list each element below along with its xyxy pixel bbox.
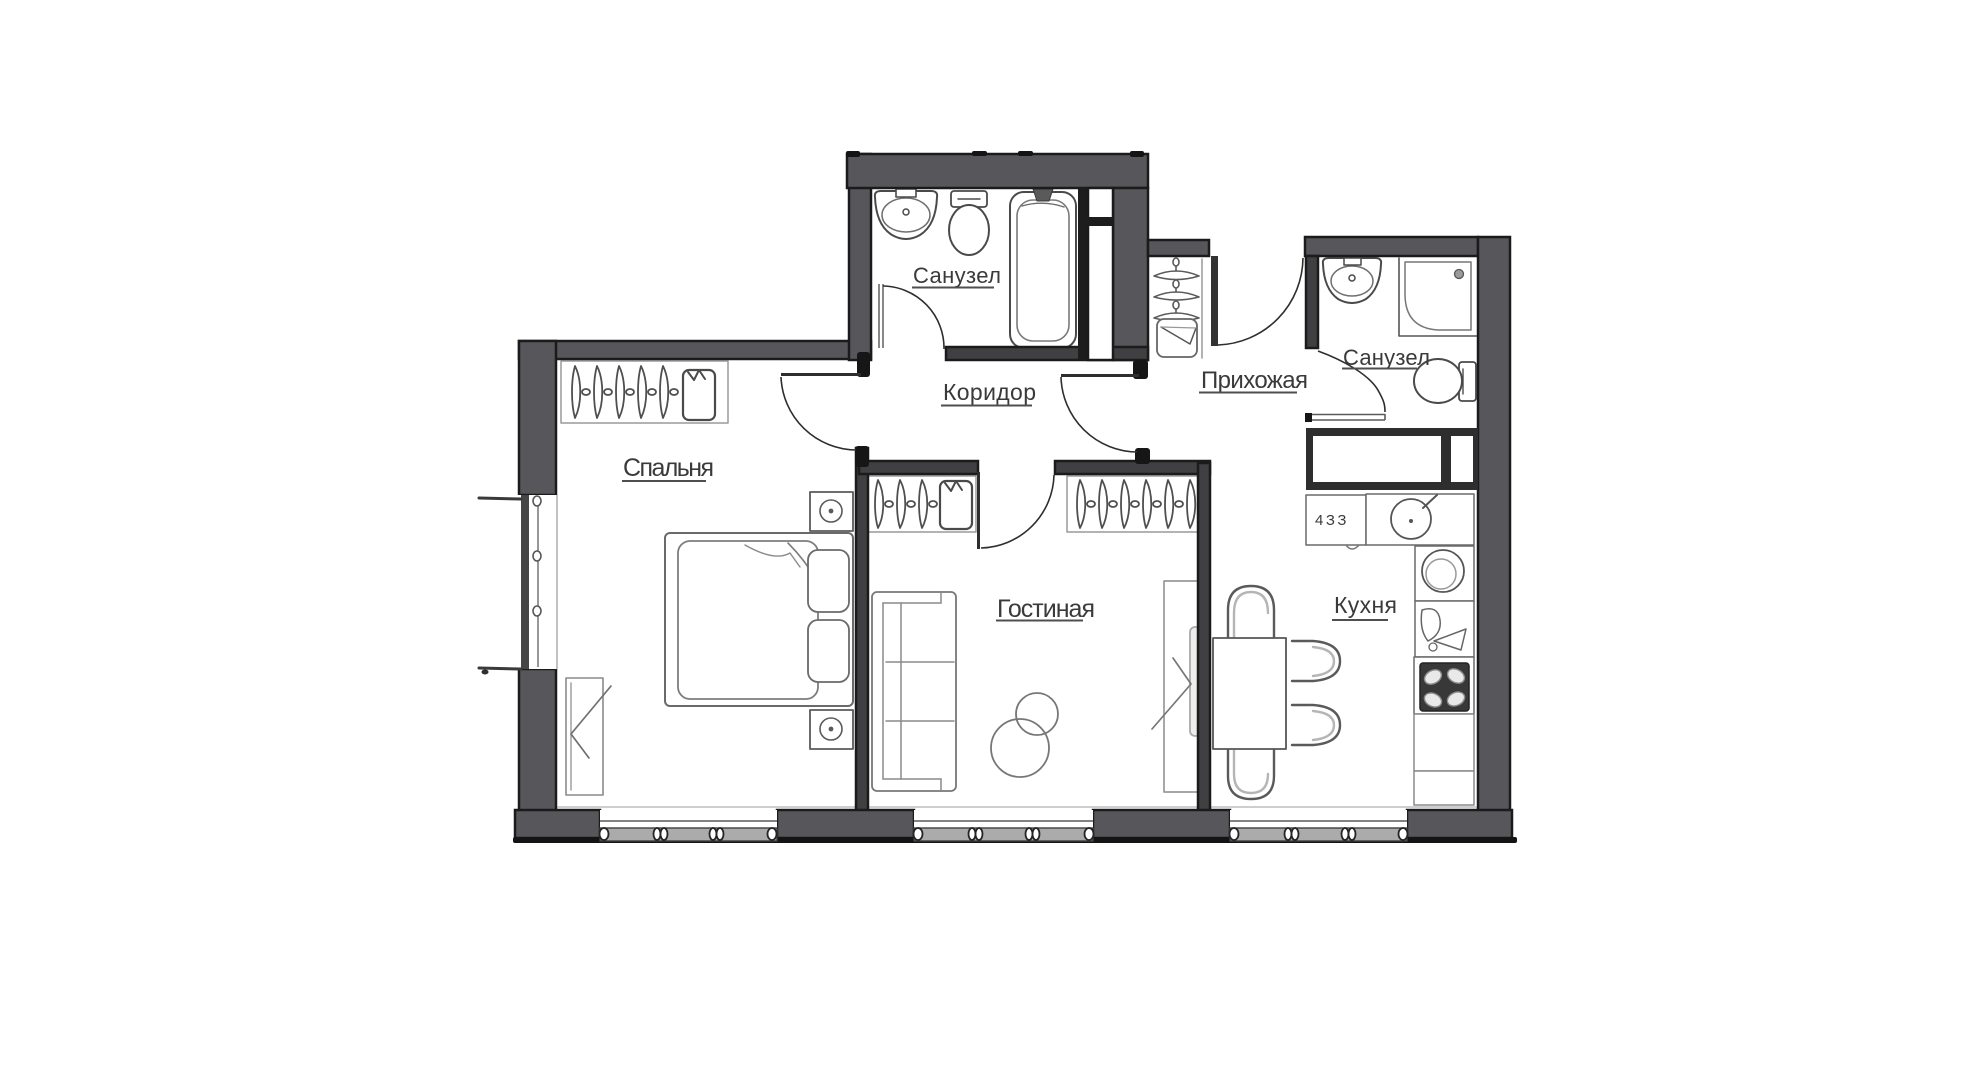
svg-text:Гостиная: Гостиная [997,595,1095,623]
svg-text:Спальня: Спальня [623,454,714,482]
svg-text:4ЗЗ: 4ЗЗ [1315,512,1349,529]
svg-text:Прихожая: Прихожая [1201,367,1308,394]
svg-text:Кухня: Кухня [1334,592,1397,618]
svg-text:Санузел: Санузел [913,263,1001,288]
svg-text:Коридор: Коридор [943,379,1036,405]
svg-text:Санузел: Санузел [1343,345,1430,370]
